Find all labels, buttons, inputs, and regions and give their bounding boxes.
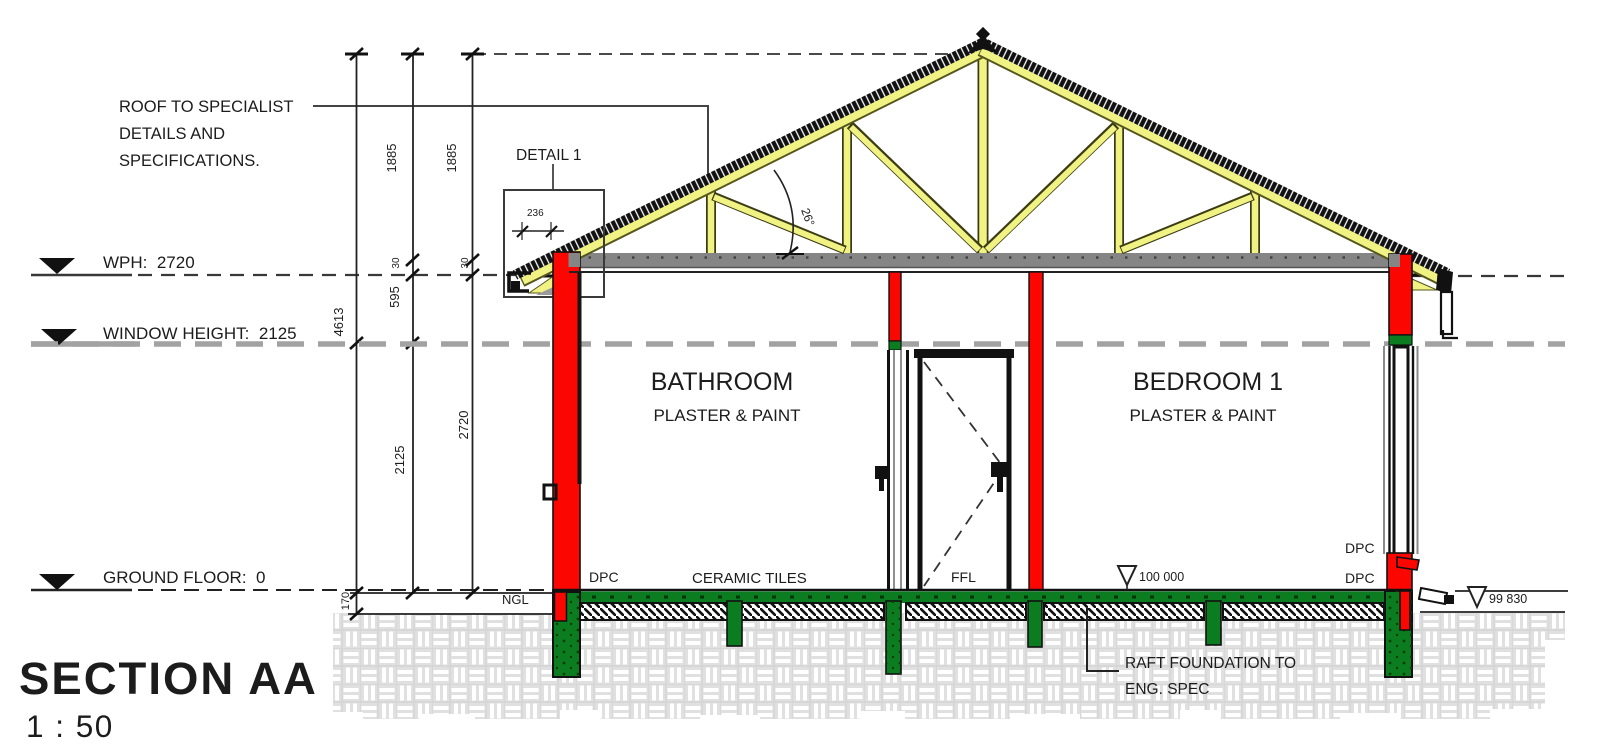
- svg-text:DETAILS AND: DETAILS AND: [119, 125, 225, 143]
- svg-text:99 830: 99 830: [1489, 592, 1527, 606]
- svg-text:170: 170: [340, 592, 352, 610]
- svg-text:ENG. SPEC: ENG. SPEC: [1125, 681, 1209, 698]
- svg-text:4613: 4613: [331, 308, 346, 337]
- svg-text:WINDOW HEIGHT: 2125: WINDOW HEIGHT: 2125: [103, 324, 297, 343]
- svg-text:SECTION AA: SECTION AA: [19, 653, 318, 704]
- svg-text:DETAIL 1: DETAIL 1: [516, 147, 581, 164]
- svg-text:BEDROOM 1: BEDROOM 1: [1133, 368, 1283, 396]
- svg-text:FFL: FFL: [951, 569, 976, 585]
- svg-text:NGL: NGL: [502, 592, 529, 607]
- svg-text:PLASTER & PAINT: PLASTER & PAINT: [653, 406, 800, 425]
- svg-text:GROUND FLOOR: 0: GROUND FLOOR: 0: [103, 568, 265, 587]
- svg-text:CERAMIC TILES: CERAMIC TILES: [692, 570, 807, 587]
- svg-text:BATHROOM: BATHROOM: [651, 368, 794, 396]
- svg-text:236: 236: [527, 208, 544, 219]
- svg-text:DPC: DPC: [589, 569, 619, 585]
- svg-text:1885: 1885: [384, 144, 399, 173]
- svg-text:PLASTER & PAINT: PLASTER & PAINT: [1129, 406, 1276, 425]
- svg-text:100 000: 100 000: [1139, 570, 1184, 584]
- svg-text:30: 30: [460, 257, 471, 269]
- svg-text:1885: 1885: [444, 144, 459, 173]
- svg-text:WPH: 2720: WPH: 2720: [103, 253, 195, 272]
- svg-text:2125: 2125: [392, 446, 407, 475]
- svg-text:ROOF TO SPECIALIST: ROOF TO SPECIALIST: [119, 98, 294, 116]
- svg-text:30: 30: [391, 257, 402, 269]
- svg-text:SPECIFICATIONS.: SPECIFICATIONS.: [119, 152, 260, 170]
- svg-text:DPC: DPC: [1345, 540, 1375, 556]
- svg-text:2720: 2720: [456, 411, 471, 440]
- svg-text:RAFT FOUNDATION TO: RAFT FOUNDATION TO: [1125, 655, 1296, 672]
- svg-text:1 : 50: 1 : 50: [26, 708, 114, 744]
- svg-text:DPC: DPC: [1345, 570, 1375, 586]
- svg-text:595: 595: [387, 286, 402, 308]
